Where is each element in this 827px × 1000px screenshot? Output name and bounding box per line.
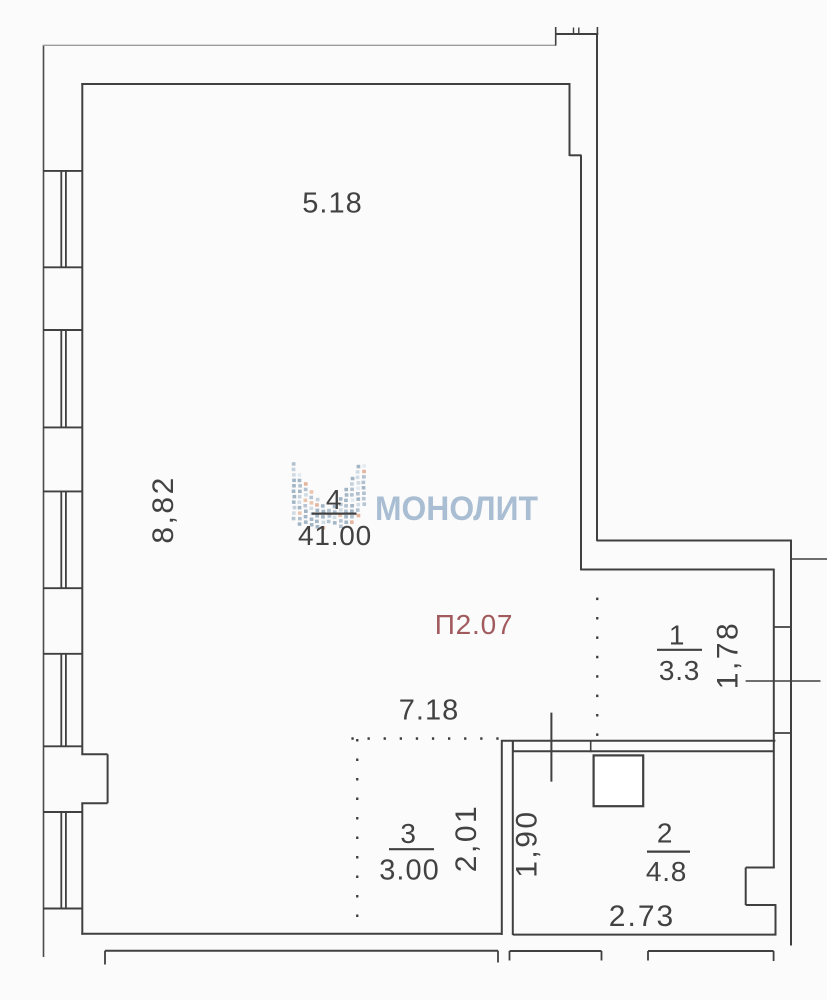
svg-text:1,78: 1,78 bbox=[712, 621, 745, 689]
svg-text:4: 4 bbox=[326, 484, 342, 515]
svg-text:3.3: 3.3 bbox=[659, 655, 700, 686]
svg-text:41.00: 41.00 bbox=[298, 520, 372, 551]
svg-text:МОНОЛИТ: МОНОЛИТ bbox=[375, 490, 538, 528]
svg-text:3: 3 bbox=[400, 818, 416, 849]
svg-text:8,82: 8,82 bbox=[147, 475, 180, 543]
svg-text:4.8: 4.8 bbox=[646, 856, 687, 887]
svg-text:3.00: 3.00 bbox=[379, 855, 439, 887]
svg-text:5.18: 5.18 bbox=[302, 188, 362, 220]
svg-text:2.73: 2.73 bbox=[609, 900, 675, 933]
svg-text:П2.07: П2.07 bbox=[435, 609, 514, 640]
svg-text:1: 1 bbox=[669, 620, 685, 651]
svg-text:1,90: 1,90 bbox=[511, 809, 544, 877]
svg-text:2,01: 2,01 bbox=[450, 804, 483, 872]
svg-text:7.18: 7.18 bbox=[399, 695, 459, 727]
svg-text:2: 2 bbox=[657, 818, 673, 849]
